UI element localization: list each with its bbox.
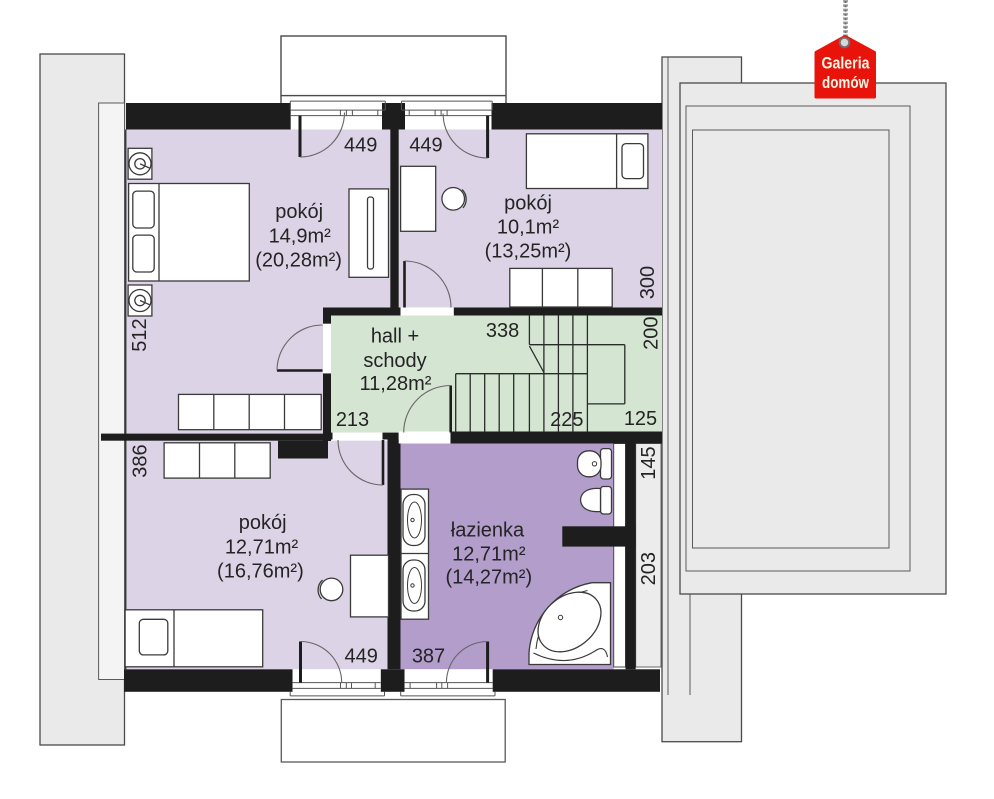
svg-text:449: 449 — [344, 135, 377, 157]
svg-text:225: 225 — [550, 409, 583, 431]
svg-text:203: 203 — [638, 552, 660, 585]
svg-text:512: 512 — [129, 318, 151, 351]
svg-text:11,28m²: 11,28m² — [360, 373, 432, 395]
svg-text:200: 200 — [641, 317, 663, 350]
svg-text:449: 449 — [345, 646, 378, 668]
svg-text:12,71m²: 12,71m² — [452, 544, 526, 566]
svg-text:10,1m²: 10,1m² — [497, 217, 560, 239]
svg-text:12,71m²: 12,71m² — [225, 537, 299, 559]
svg-text:449: 449 — [409, 135, 442, 157]
svg-text:145: 145 — [638, 446, 660, 479]
svg-text:pokój: pokój — [275, 201, 323, 223]
svg-text:14,9m²: 14,9m² — [269, 225, 332, 247]
svg-text:(14,27m²): (14,27m²) — [445, 567, 532, 589]
svg-text:125: 125 — [624, 408, 657, 430]
svg-text:(20,28m²): (20,28m²) — [255, 250, 342, 272]
svg-text:Galeria: Galeria — [822, 54, 870, 73]
svg-text:386: 386 — [129, 444, 151, 477]
svg-text:domów: domów — [822, 73, 870, 92]
svg-text:pokój: pokój — [239, 512, 287, 534]
svg-text:schody: schody — [363, 350, 426, 372]
svg-text:pokój: pokój — [504, 193, 552, 215]
svg-text:hall +: hall + — [371, 326, 419, 348]
svg-text:łazienka: łazienka — [451, 520, 525, 542]
svg-text:(13,25m²): (13,25m²) — [485, 241, 572, 263]
svg-text:338: 338 — [486, 320, 519, 342]
svg-text:387: 387 — [412, 646, 445, 668]
svg-text:300: 300 — [637, 266, 659, 299]
svg-text:213: 213 — [336, 409, 369, 431]
svg-text:(16,76m²): (16,76m²) — [217, 561, 304, 583]
